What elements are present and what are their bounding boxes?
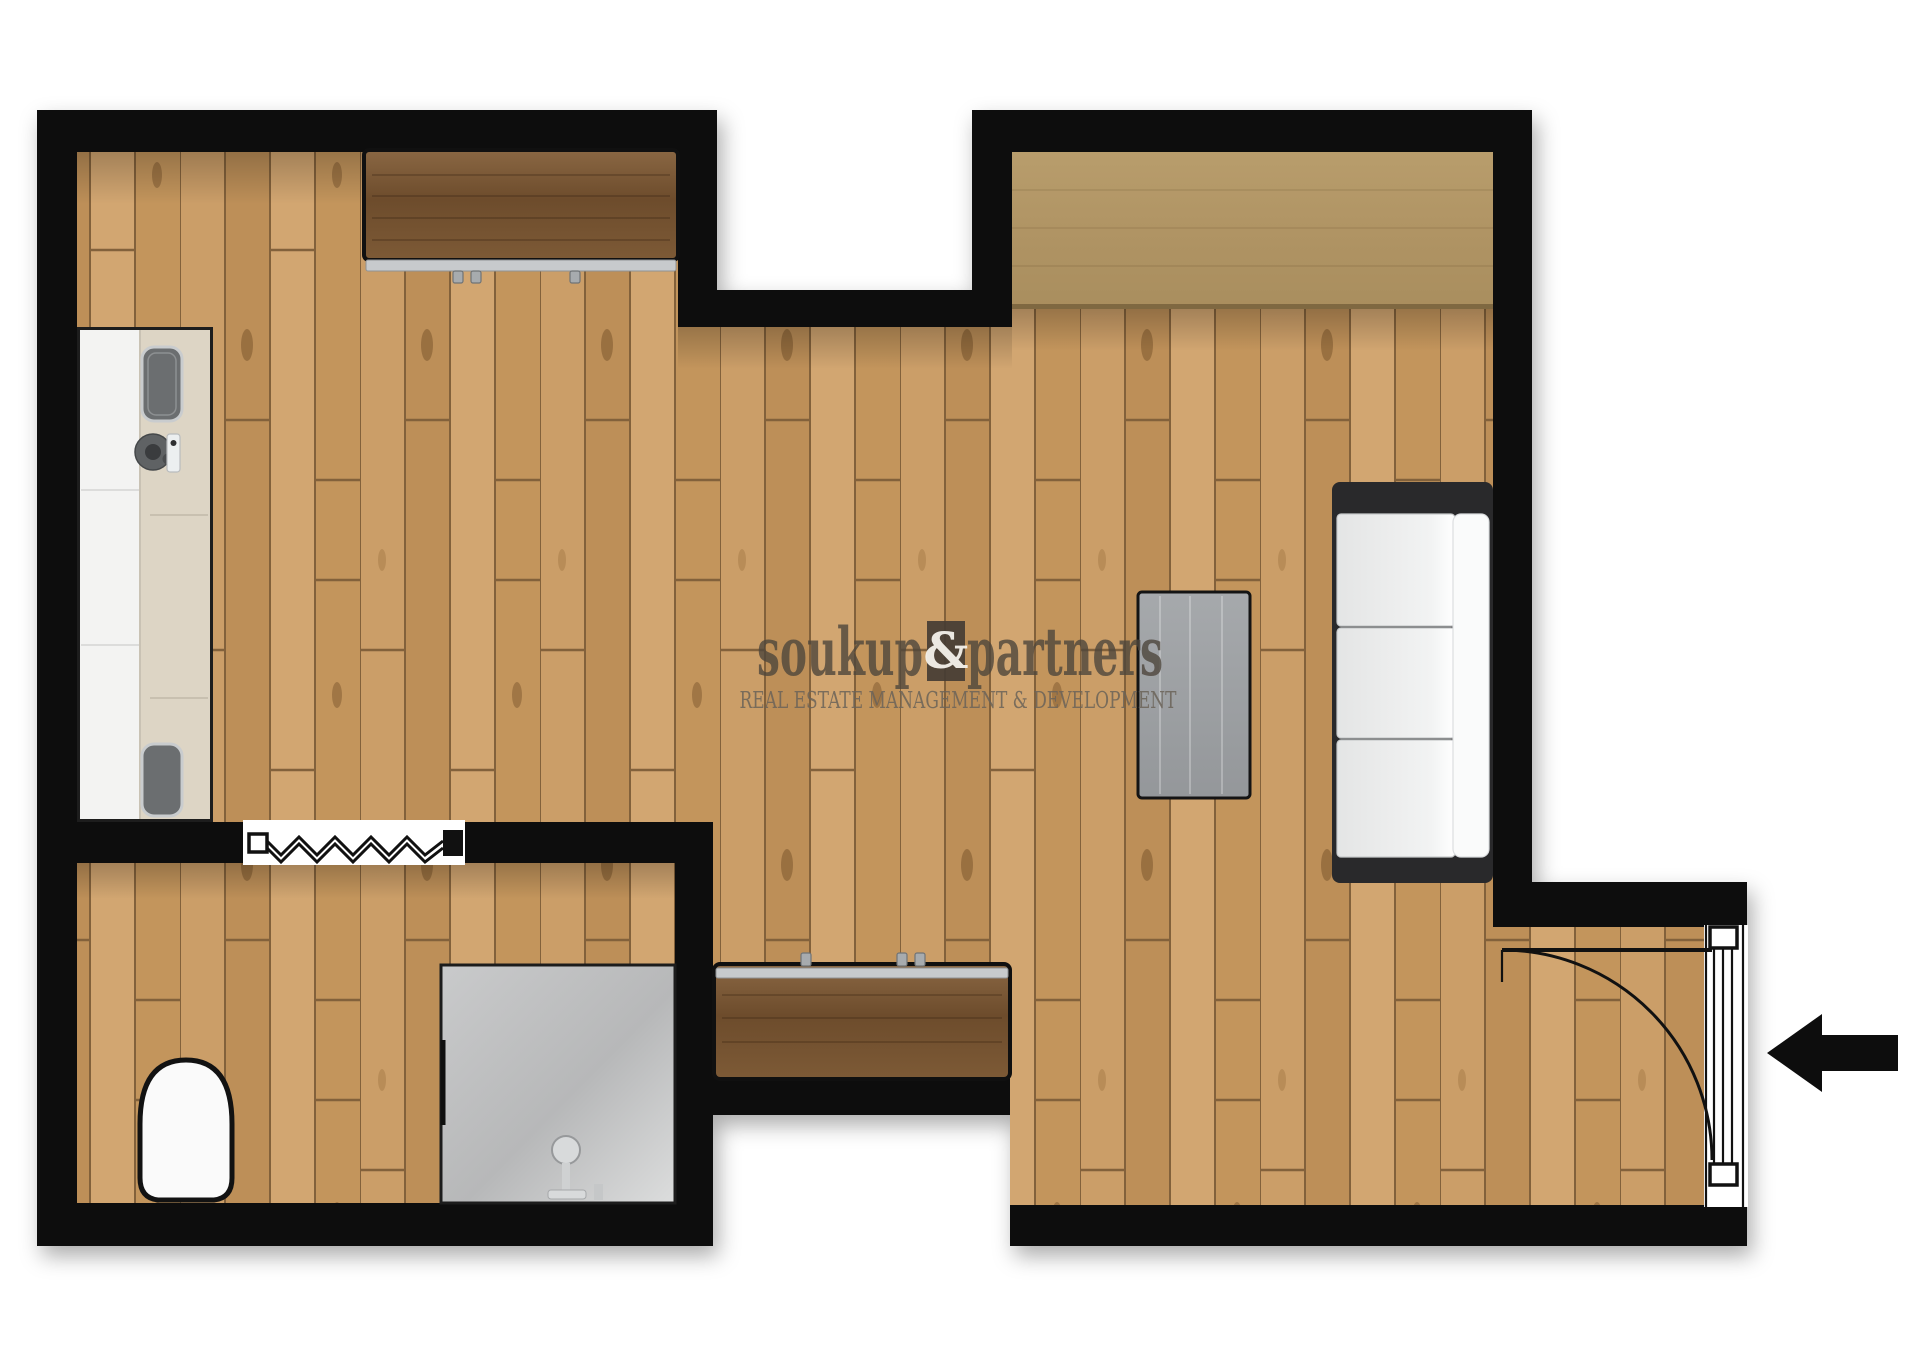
- watermark: soukup & partners REAL ESTATE MANAGEMENT…: [740, 613, 1177, 714]
- floor-shading: [678, 327, 1012, 369]
- toilet: [140, 1060, 232, 1200]
- entrance-arrow-icon: [1767, 1014, 1898, 1092]
- floor-plan: soukup & partners REAL ESTATE MANAGEMENT…: [0, 0, 1920, 1358]
- wardrobe: [1012, 152, 1493, 309]
- floor-shading: [1012, 309, 1493, 351]
- kitchen-sink-icon: [142, 347, 182, 421]
- brand-amp: &: [923, 621, 968, 680]
- sofa-cushions: [1337, 514, 1489, 857]
- sideboard: [714, 953, 1010, 1079]
- shower: [441, 965, 675, 1203]
- interior-window-radiator: [243, 820, 465, 865]
- floor-plan-page: soukup & partners REAL ESTATE MANAGEMENT…: [0, 0, 1920, 1358]
- brand-left: soukup: [757, 613, 923, 691]
- kitchen-appliance-icon: [142, 744, 182, 816]
- kitchen-counter: [77, 327, 213, 822]
- tagline: REAL ESTATE MANAGEMENT & DEVELOPMENT: [740, 688, 1177, 714]
- brand-right: partners: [967, 613, 1163, 691]
- floor-shading: [77, 863, 675, 899]
- kitchen-cooktop-icon: [135, 434, 180, 472]
- desk: [364, 150, 678, 283]
- sofa: [1332, 482, 1493, 883]
